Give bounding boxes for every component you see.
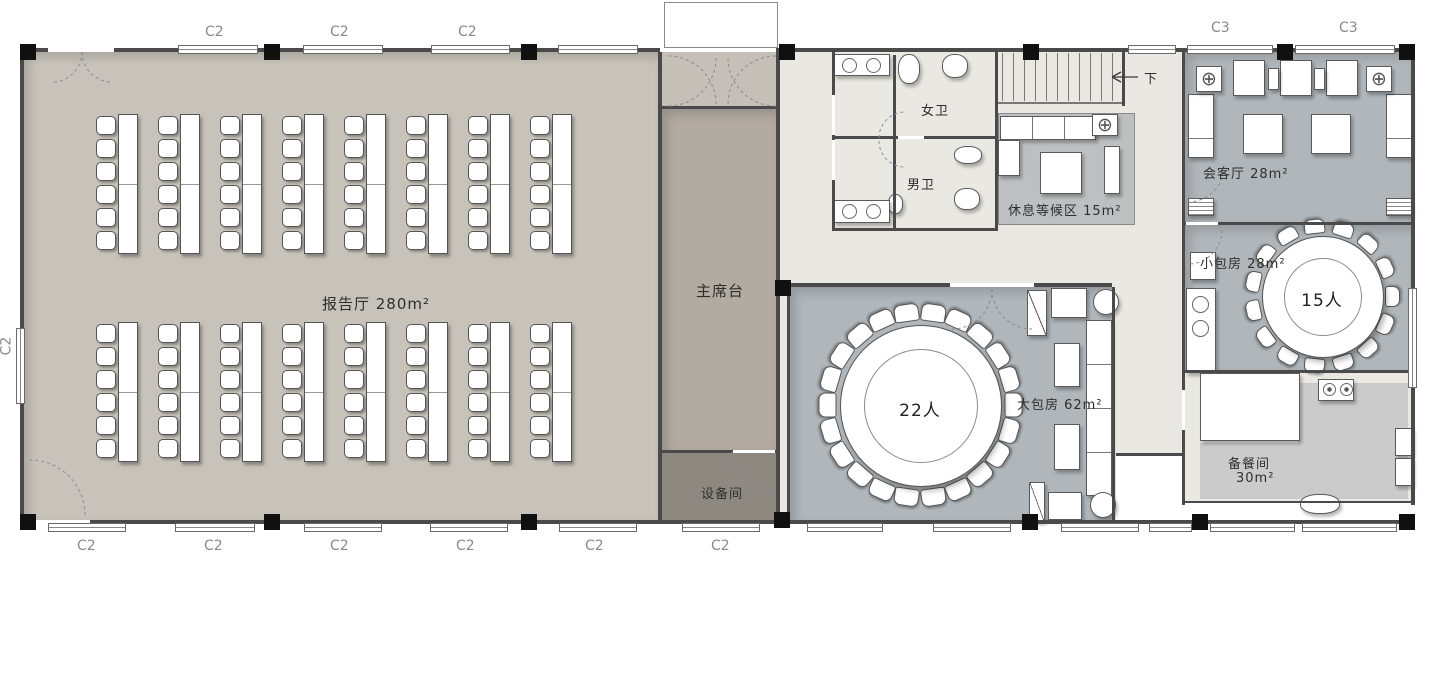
- lecture-table: [428, 322, 448, 462]
- lecture-table: [552, 114, 572, 254]
- window: [682, 523, 760, 532]
- wall: [1185, 370, 1415, 373]
- window: [807, 523, 883, 532]
- lecture-chair: [406, 208, 426, 227]
- lecture-table: [428, 114, 448, 254]
- column: [1192, 514, 1208, 530]
- stair-tread: [1068, 53, 1069, 101]
- sink-basin-icon: [1192, 296, 1209, 313]
- door-opening: [832, 140, 835, 180]
- label-large-private: 大包房 62m²: [1017, 394, 1103, 413]
- stair-tread: [1112, 53, 1113, 101]
- label-equipment: 设备间: [701, 483, 743, 502]
- lecture-chair: [344, 370, 364, 389]
- dining-chair: [818, 393, 836, 418]
- lecture-chair: [344, 347, 364, 366]
- axis-left-c2: C2: [0, 337, 14, 356]
- stair-tread: [1057, 53, 1058, 101]
- lecture-chair: [96, 439, 116, 458]
- lecture-chair: [344, 324, 364, 343]
- lecture-chair: [158, 439, 178, 458]
- coffee-table: [1243, 114, 1283, 154]
- lecture-chair: [344, 185, 364, 204]
- lecture-chair: [344, 116, 364, 135]
- label-small-private: 小包房 28m²: [1200, 253, 1286, 272]
- lecture-chair: [530, 324, 550, 343]
- lecture-chair: [158, 393, 178, 412]
- door-opening: [733, 450, 775, 453]
- lecture-chair: [468, 439, 488, 458]
- label-small-table-seats: 15人: [1288, 286, 1356, 311]
- squat-toilet-icon: [942, 54, 968, 78]
- lecture-chair: [468, 370, 488, 389]
- wall: [1185, 501, 1415, 503]
- lecture-chair: [220, 416, 240, 435]
- column: [1399, 44, 1415, 60]
- dining-chair: [893, 486, 920, 507]
- armchair: [1280, 60, 1312, 96]
- lecture-chair: [468, 347, 488, 366]
- label-stage: 主席台: [696, 280, 744, 301]
- wall: [832, 228, 998, 231]
- lecture-chair: [96, 393, 116, 412]
- window: [48, 523, 126, 532]
- lecture-chair: [158, 416, 178, 435]
- lecture-chair: [344, 208, 364, 227]
- column: [1399, 514, 1415, 530]
- lecture-chair: [96, 324, 116, 343]
- lecture-chair: [530, 416, 550, 435]
- lecture-chair: [220, 139, 240, 158]
- axis-top-c2-2: C2: [330, 24, 349, 40]
- lecture-chair: [282, 185, 302, 204]
- lecture-table: [118, 114, 138, 254]
- sink-basin-icon: [842, 58, 857, 73]
- axis-bottom-c2-2: C2: [204, 538, 223, 554]
- axis-bottom-c2-3: C2: [330, 538, 349, 554]
- column: [1277, 44, 1293, 60]
- column: [521, 514, 537, 530]
- dining-chair: [1303, 218, 1325, 235]
- dining-chair: [920, 302, 947, 323]
- wall: [893, 55, 896, 136]
- lecture-chair: [406, 231, 426, 250]
- axis-bottom-c2-1: C2: [77, 538, 96, 554]
- window: [1302, 523, 1397, 532]
- coffee-table: [1311, 114, 1351, 154]
- burner-icon: [1323, 383, 1336, 396]
- lecture-table: [242, 322, 262, 462]
- label-lecture-hall: 报告厅 280m²: [322, 293, 430, 314]
- lecture-table: [304, 114, 324, 254]
- wall: [1411, 48, 1415, 505]
- lecture-chair: [220, 231, 240, 250]
- label-pantry-name: 备餐间: [1228, 453, 1270, 472]
- radiator: [1386, 198, 1412, 216]
- door-opening: [832, 95, 835, 135]
- lecture-chair: [220, 347, 240, 366]
- column: [20, 44, 36, 60]
- door-opening: [898, 136, 924, 139]
- wall: [893, 139, 896, 228]
- lecture-chair: [406, 416, 426, 435]
- lecture-chair: [158, 185, 178, 204]
- label-waiting: 休息等候区 15m²: [1008, 200, 1122, 219]
- lecture-chair: [406, 347, 426, 366]
- door-opening: [1182, 390, 1185, 430]
- lecture-chair: [220, 324, 240, 343]
- side-table: [1054, 424, 1080, 470]
- door-opening: [950, 283, 1034, 287]
- wall: [995, 52, 998, 230]
- lecture-chair: [96, 370, 116, 389]
- column: [521, 44, 537, 60]
- lecture-chair: [468, 416, 488, 435]
- lecture-chair: [344, 139, 364, 158]
- lecture-table: [366, 322, 386, 462]
- lecture-chair: [96, 208, 116, 227]
- lecture-chair: [406, 185, 426, 204]
- lecture-chair: [158, 324, 178, 343]
- window: [304, 523, 382, 532]
- lecture-chair: [468, 162, 488, 181]
- sink-basin-icon: [842, 204, 857, 219]
- lecture-chair: [530, 116, 550, 135]
- window: [16, 328, 25, 404]
- lecture-chair: [406, 324, 426, 343]
- lecture-table: [180, 114, 200, 254]
- window: [1187, 45, 1273, 54]
- wall: [1116, 453, 1185, 456]
- lecture-chair: [158, 208, 178, 227]
- planter-icon: ⊕: [1366, 66, 1392, 92]
- lecture-chair: [344, 231, 364, 250]
- planter-icon: ⊕: [1092, 114, 1118, 136]
- planter-icon: ⊕: [1196, 66, 1222, 92]
- lecture-table: [180, 322, 200, 462]
- armchair: [1051, 288, 1087, 318]
- lecture-chair: [344, 439, 364, 458]
- side-table: [1268, 68, 1279, 90]
- dining-chair: [893, 302, 920, 323]
- lecture-chair: [96, 139, 116, 158]
- lecture-chair: [96, 231, 116, 250]
- sofa: [1188, 94, 1214, 158]
- lecture-chair: [344, 416, 364, 435]
- lecture-table: [118, 322, 138, 462]
- lecture-table: [490, 114, 510, 254]
- lecture-chair: [158, 116, 178, 135]
- label-pantry-area: 30m²: [1236, 471, 1274, 486]
- lecture-chair: [468, 116, 488, 135]
- sink-unit: [1300, 494, 1340, 514]
- window: [430, 523, 508, 532]
- squat-toilet-icon: [954, 146, 982, 164]
- sink-basin-icon: [1192, 320, 1209, 337]
- wall: [1122, 52, 1125, 106]
- lecture-chair: [96, 116, 116, 135]
- lecture-chair: [282, 139, 302, 158]
- dumbwaiter-alcove: [1200, 373, 1300, 441]
- wall: [1112, 287, 1115, 520]
- window: [1408, 288, 1417, 388]
- lecture-chair: [530, 393, 550, 412]
- lecture-chair: [158, 347, 178, 366]
- column: [775, 280, 791, 296]
- lecture-table: [304, 322, 324, 462]
- window: [431, 45, 510, 54]
- lecture-table: [242, 114, 262, 254]
- column: [779, 44, 795, 60]
- lecture-chair: [282, 231, 302, 250]
- waiting-sofa: [1000, 116, 1096, 140]
- sink-basin-icon: [866, 58, 881, 73]
- stair-tread: [1035, 53, 1036, 101]
- stair-tread: [1024, 53, 1025, 101]
- window: [1210, 523, 1295, 532]
- burner-icon: [1340, 383, 1353, 396]
- lecture-chair: [406, 116, 426, 135]
- waiting-sofa-arm: [998, 140, 1020, 176]
- window: [558, 45, 638, 54]
- lecture-chair: [530, 347, 550, 366]
- axis-top-c2-1: C2: [205, 24, 224, 40]
- label-stairs-down: 下: [1144, 68, 1158, 87]
- window: [178, 45, 258, 54]
- toilet-icon: [898, 54, 920, 84]
- lecture-chair: [158, 231, 178, 250]
- stair-tread: [1079, 53, 1080, 101]
- void-patch: [1116, 456, 1182, 520]
- entrance-canopy: [664, 2, 778, 48]
- lecture-chair: [282, 393, 302, 412]
- lecture-chair: [406, 439, 426, 458]
- window: [1295, 45, 1395, 54]
- lecture-chair: [96, 347, 116, 366]
- window: [175, 523, 255, 532]
- lecture-chair: [220, 185, 240, 204]
- lecture-chair: [468, 393, 488, 412]
- lecture-chair: [468, 185, 488, 204]
- door-opening: [1186, 222, 1218, 225]
- lecture-chair: [158, 370, 178, 389]
- side-table: [1054, 343, 1080, 387]
- lecture-chair: [406, 139, 426, 158]
- column: [774, 512, 790, 528]
- lecture-table: [366, 114, 386, 254]
- lecture-chair: [282, 162, 302, 181]
- column: [264, 514, 280, 530]
- window: [559, 523, 637, 532]
- window: [303, 45, 383, 54]
- stair-landing-edge: [998, 102, 1125, 104]
- window: [1149, 523, 1192, 532]
- lecture-chair: [220, 393, 240, 412]
- wall: [787, 287, 790, 520]
- sink-basin-icon: [866, 204, 881, 219]
- lecture-table: [490, 322, 510, 462]
- lecture-chair: [282, 208, 302, 227]
- sofa: [1386, 94, 1412, 158]
- floor-plan-canvas: { "title": "二层领导包房及报告厅平面布置", "rooms": { …: [0, 0, 1431, 684]
- room-vestibule: [662, 52, 776, 106]
- stair-tread: [1101, 53, 1102, 101]
- lecture-chair: [96, 162, 116, 181]
- wall: [20, 48, 24, 524]
- lecture-chair: [530, 231, 550, 250]
- armchair: [1233, 60, 1265, 96]
- lecture-chair: [530, 208, 550, 227]
- armchair: [1048, 492, 1082, 520]
- lecture-chair: [344, 393, 364, 412]
- stair-tread: [1046, 53, 1047, 101]
- window: [1128, 45, 1176, 54]
- lecture-table: [552, 322, 572, 462]
- stair-tread: [1002, 53, 1003, 101]
- lecture-chair: [158, 139, 178, 158]
- label-reception: 会客厅 28m²: [1203, 163, 1289, 182]
- lecture-chair: [530, 185, 550, 204]
- column: [264, 44, 280, 60]
- toilet-icon: [954, 188, 980, 210]
- lecture-chair: [468, 231, 488, 250]
- axis-top-c3-2: C3: [1339, 20, 1358, 36]
- lecture-chair: [530, 439, 550, 458]
- lecture-chair: [158, 162, 178, 181]
- label-mens-wc: 男卫: [907, 174, 935, 193]
- axis-top-c2-3: C2: [458, 24, 477, 40]
- side-table-round: [1093, 289, 1119, 315]
- lecture-chair: [282, 324, 302, 343]
- lecture-chair: [220, 439, 240, 458]
- axis-bottom-c2-5: C2: [585, 538, 604, 554]
- waiting-side-table: [1104, 146, 1120, 194]
- lecture-chair: [468, 139, 488, 158]
- column: [1022, 514, 1038, 530]
- lecture-chair: [406, 393, 426, 412]
- label-womens-wc: 女卫: [921, 100, 949, 119]
- lecture-chair: [282, 439, 302, 458]
- wall: [1182, 52, 1185, 505]
- wall: [1185, 222, 1415, 225]
- waiting-coffee-table: [1040, 152, 1082, 194]
- wall: [662, 106, 776, 109]
- lecture-chair: [530, 139, 550, 158]
- radiator: [1188, 198, 1214, 216]
- window: [1061, 523, 1139, 532]
- lecture-chair: [468, 208, 488, 227]
- side-table: [1314, 68, 1325, 90]
- lecture-chair: [406, 370, 426, 389]
- column: [20, 514, 36, 530]
- label-large-table-seats: 22人: [880, 396, 960, 421]
- axis-bottom-c2-6: C2: [711, 538, 730, 554]
- lecture-chair: [220, 116, 240, 135]
- lecture-chair: [468, 324, 488, 343]
- lecture-chair: [220, 370, 240, 389]
- lecture-chair: [530, 370, 550, 389]
- axis-bottom-c2-4: C2: [456, 538, 475, 554]
- lecture-chair: [282, 116, 302, 135]
- lecture-chair: [282, 347, 302, 366]
- lecture-chair: [96, 416, 116, 435]
- lecture-chair: [530, 162, 550, 181]
- axis-top-c3-1: C3: [1211, 20, 1230, 36]
- door-opening: [48, 48, 114, 52]
- lecture-chair: [282, 370, 302, 389]
- armchair: [1326, 60, 1358, 96]
- tv-cabinet: [1027, 290, 1047, 336]
- lecture-chair: [220, 208, 240, 227]
- lecture-chair: [406, 162, 426, 181]
- lecture-chair: [220, 162, 240, 181]
- stair-tread: [1013, 53, 1014, 101]
- lecture-chair: [344, 162, 364, 181]
- column: [1023, 44, 1039, 60]
- dining-chair: [1385, 286, 1400, 307]
- lecture-chair: [96, 185, 116, 204]
- window: [933, 523, 1011, 532]
- lecture-chair: [282, 416, 302, 435]
- stair-tread: [1090, 53, 1091, 101]
